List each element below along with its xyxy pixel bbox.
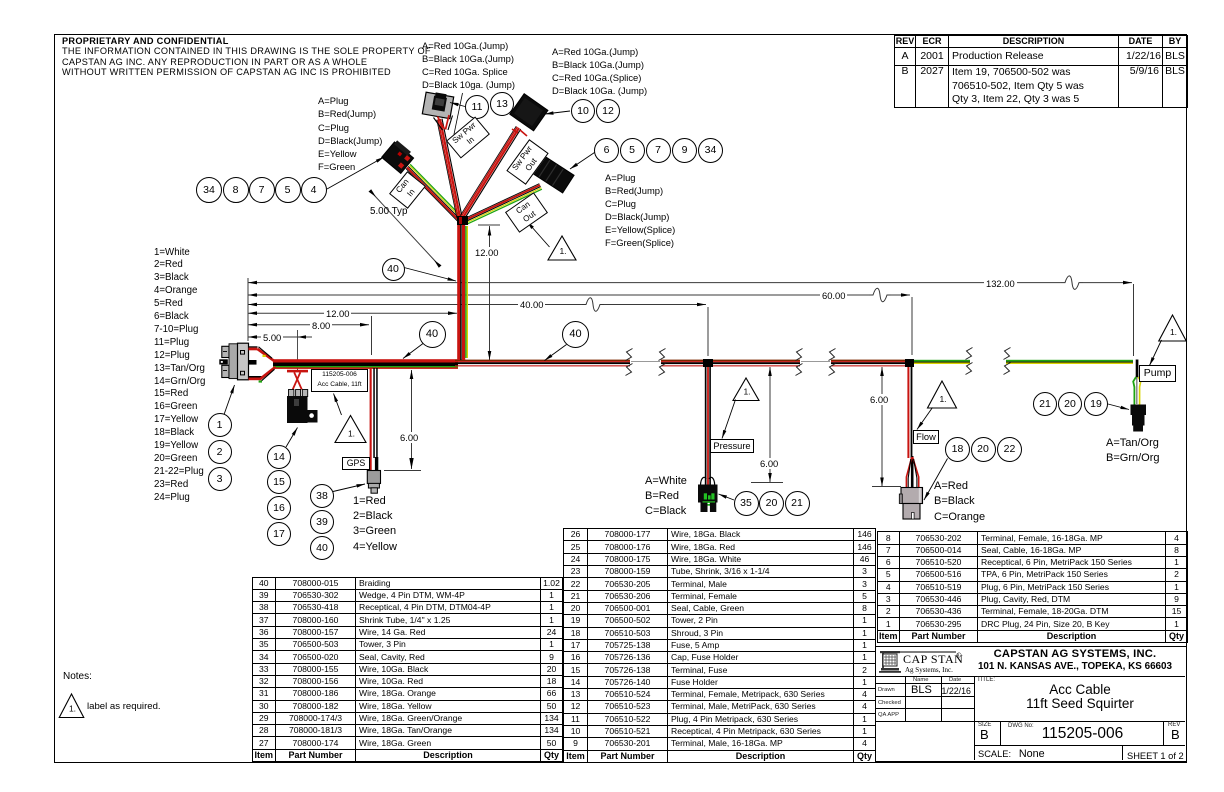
svg-text:1.: 1.	[1170, 327, 1177, 337]
svg-text:CAP STAN: CAP STAN	[903, 652, 963, 666]
svg-text:R: R	[956, 653, 959, 658]
svg-text:1.: 1.	[939, 394, 946, 404]
svg-text:1.: 1.	[743, 387, 750, 397]
svg-text:1.: 1.	[559, 246, 566, 256]
svg-text:1.: 1.	[348, 429, 355, 439]
svg-text:Ag Systems, Inc.: Ag Systems, Inc.	[905, 666, 953, 674]
svg-text:1.: 1.	[69, 704, 76, 714]
